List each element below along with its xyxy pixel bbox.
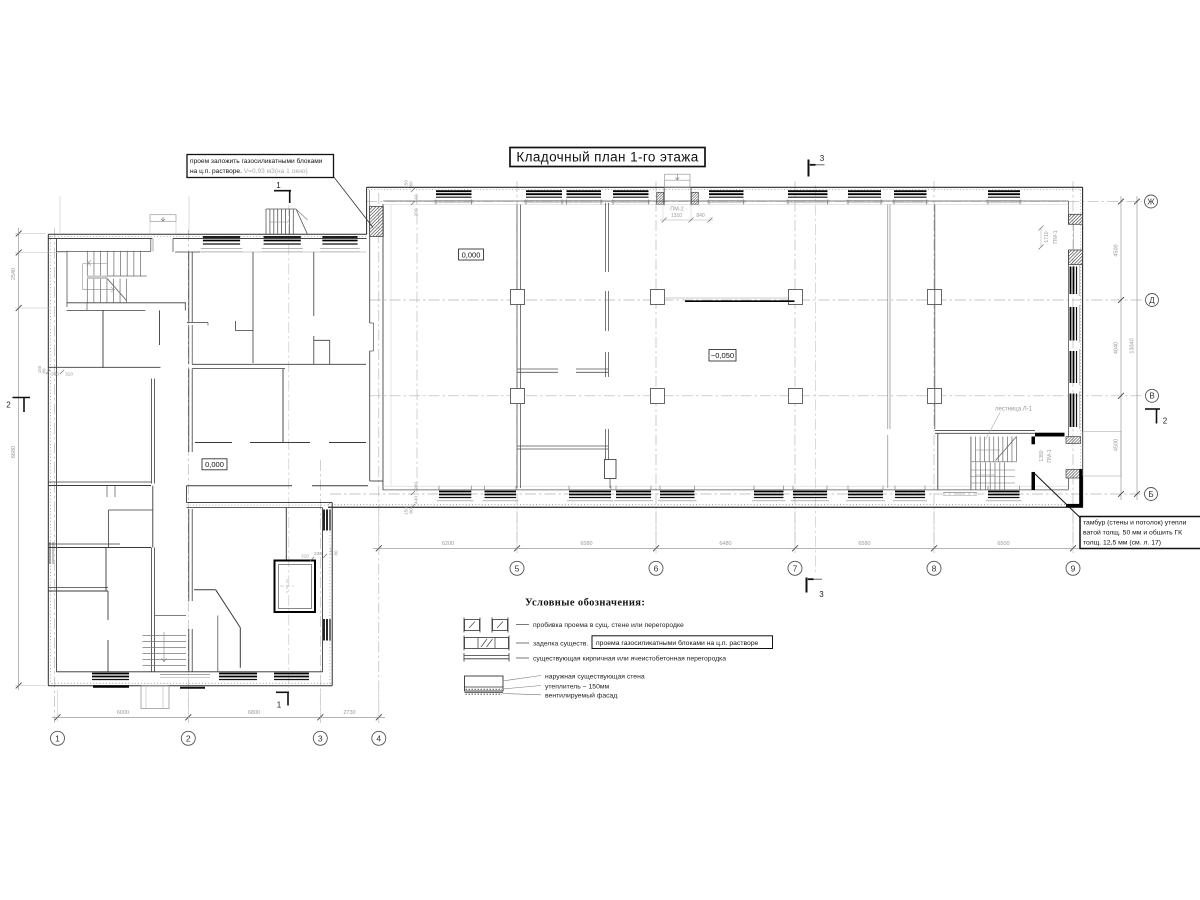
svg-text:6500: 6500 (997, 541, 1009, 547)
svg-text:В: В (1149, 392, 1154, 401)
svg-text:6580: 6580 (580, 541, 592, 547)
svg-text:ПМ-1: ПМ-1 (1047, 449, 1053, 462)
svg-text:80: 80 (42, 368, 47, 374)
svg-text:ПМ-2: ПМ-2 (670, 206, 683, 212)
svg-text:840: 840 (696, 213, 705, 219)
svg-text:80: 80 (409, 181, 415, 187)
svg-text:6200: 6200 (442, 541, 454, 547)
svg-text:0,000: 0,000 (462, 250, 481, 259)
svg-text:310: 310 (65, 372, 73, 378)
svg-text:Кладочный план 1-го этажа: Кладочный план 1-го этажа (516, 150, 698, 165)
svg-text:4500: 4500 (1114, 244, 1120, 256)
svg-text:310: 310 (301, 554, 309, 560)
svg-text:7: 7 (793, 563, 798, 573)
svg-text:3: 3 (318, 733, 323, 743)
svg-text:8: 8 (932, 563, 937, 573)
svg-text:4: 4 (376, 733, 381, 743)
svg-text:Ж: Ж (1147, 197, 1155, 206)
svg-text:4040: 4040 (1114, 342, 1120, 354)
svg-text:4500: 4500 (1114, 439, 1120, 451)
svg-text:80: 80 (334, 550, 339, 556)
svg-text:Д: Д (1149, 296, 1155, 305)
svg-text:толщ. 12,5 мм (см. л. 17): толщ. 12,5 мм (см. л. 17) (1083, 540, 1161, 547)
svg-text:2: 2 (1163, 417, 1168, 426)
svg-text:1710: 1710 (1044, 231, 1050, 242)
svg-text:2: 2 (186, 733, 191, 743)
svg-text:80: 80 (409, 508, 415, 514)
svg-text:заделка существ.: заделка существ. (533, 641, 588, 648)
svg-text:6000: 6000 (117, 710, 129, 716)
svg-text:1380: 1380 (1039, 450, 1045, 461)
svg-text:1: 1 (276, 181, 281, 190)
svg-text:−0,050: −0,050 (711, 351, 734, 360)
svg-text:6480: 6480 (719, 541, 731, 547)
svg-text:6: 6 (654, 563, 659, 573)
svg-text:440: 440 (414, 496, 420, 504)
svg-text:вентилируемый фасад: вентилируемый фасад (545, 692, 617, 700)
svg-text:Условные обозначения:: Условные обозначения: (525, 598, 645, 609)
svg-text:на ц.п. растворе. V=0,93 м3(на: на ц.п. растворе. V=0,93 м3(на 1 окно) (190, 168, 308, 175)
svg-text:330: 330 (314, 551, 322, 557)
svg-text:13040: 13040 (1130, 338, 1136, 353)
svg-text:ПМ-1: ПМ-1 (1053, 230, 1059, 243)
svg-text:1: 1 (277, 701, 282, 710)
svg-text:проем заложить газосиликатными: проем заложить газосиликатными блоками (190, 157, 323, 165)
svg-text:2540: 2540 (11, 268, 17, 280)
svg-text:6680: 6680 (11, 446, 17, 458)
svg-text:ватой толщ. 50 мм и обшить ГК: ватой толщ. 50 мм и обшить ГК (1083, 529, 1182, 537)
svg-text:1: 1 (55, 733, 60, 743)
svg-text:200: 200 (414, 482, 420, 490)
svg-text:6800: 6800 (248, 710, 260, 716)
svg-text:2: 2 (6, 401, 11, 410)
svg-text:2730: 2730 (343, 710, 355, 716)
svg-text:существующая кирпичная или яче: существующая кирпичная или ячеистобетонн… (533, 655, 726, 663)
svg-text:проема газосиликатными блоками: проема газосиликатными блоками на ц.п. р… (596, 639, 759, 647)
svg-text:3: 3 (819, 590, 824, 599)
svg-text:тамбур (стены и потолок) утепл: тамбур (стены и потолок) утепли (1083, 519, 1187, 527)
svg-text:200: 200 (414, 208, 420, 216)
svg-text:330: 330 (51, 372, 59, 378)
svg-text:3: 3 (820, 154, 825, 163)
svg-text:0,000: 0,000 (205, 460, 224, 469)
svg-text:пробивка проема в сущ. стене: пробивка проема в сущ. стене или перегор… (533, 621, 684, 629)
svg-text:наружная существующая стена: наружная существующая стена (545, 674, 645, 681)
svg-text:лестница Л-1: лестница Л-1 (995, 407, 1033, 413)
svg-text:6580: 6580 (858, 541, 870, 547)
svg-text:9: 9 (1071, 563, 1076, 573)
svg-text:5: 5 (515, 563, 520, 573)
svg-text:утеплитель − 150мм: утеплитель − 150мм (545, 684, 610, 691)
svg-text:1310: 1310 (671, 213, 682, 219)
svg-text:Б: Б (1148, 490, 1153, 499)
